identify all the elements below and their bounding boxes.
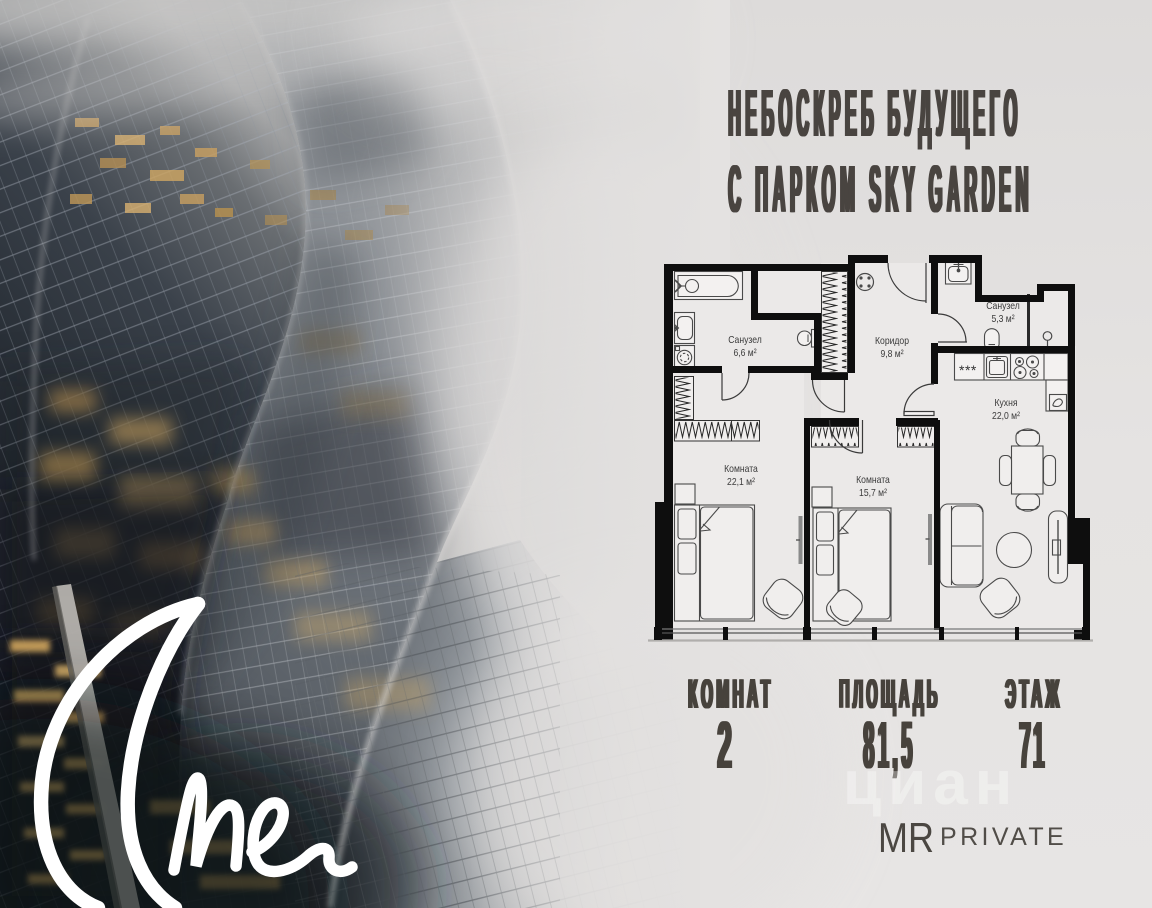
svg-text:22,1 м²: 22,1 м² [727, 476, 756, 488]
svg-text:Комната: Комната [856, 474, 890, 486]
svg-text:71: 71 [1021, 708, 1048, 782]
svg-text:Кухня: Кухня [994, 397, 1017, 409]
svg-text:циан: циан [843, 749, 1019, 818]
svg-text:Санузел: Санузел [986, 300, 1020, 312]
svg-text:22,0 м²: 22,0 м² [992, 410, 1021, 422]
svg-text:6,6 м²: 6,6 м² [733, 347, 757, 359]
svg-text:Коридор: Коридор [875, 335, 909, 347]
svg-text:С ПАРКОМ SKY GARDEN: С ПАРКОМ SKY GARDEN [730, 153, 1035, 227]
svg-text:5,3 м²: 5,3 м² [991, 313, 1015, 325]
svg-text:PRIVATE: PRIVATE [940, 823, 1067, 851]
svg-text:2: 2 [719, 707, 733, 782]
svg-text:15,7 м²: 15,7 м² [859, 487, 888, 499]
svg-text:НЕБОСКРЕБ БУДУЩЕГО: НЕБОСКРЕБ БУДУЩЕГО [730, 77, 1024, 151]
svg-text:Комната: Комната [724, 463, 758, 475]
svg-text:Санузел: Санузел [728, 334, 762, 346]
svg-text:***: *** [959, 362, 977, 378]
svg-text:9,8 м²: 9,8 м² [880, 348, 904, 360]
svg-text:MR: MR [878, 815, 934, 861]
